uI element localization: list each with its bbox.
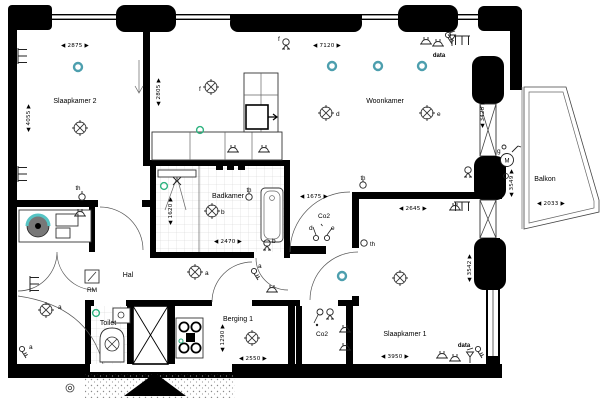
door-berging — [212, 262, 252, 302]
doorbell-icon — [66, 384, 74, 392]
co2-label: Co2 — [316, 331, 328, 338]
window-north-woonkamer-2 — [458, 15, 478, 18]
th-label: th — [360, 176, 365, 182]
room-label-berging1: Berging 1 — [223, 316, 253, 323]
switch-icon — [19, 346, 27, 358]
wall-south — [8, 364, 502, 378]
ceiling-light-icon — [419, 105, 435, 121]
rm-smoke-detector: RM — [85, 270, 99, 294]
entree-porch — [66, 364, 235, 398]
window-north-slaapkamer2 — [52, 15, 116, 18]
window-north-woonkamer-1 — [362, 15, 398, 18]
radiator-icon — [18, 48, 27, 64]
rm-label: RM — [87, 287, 97, 294]
window-north-keuken — [176, 15, 230, 18]
door-slaapkamer2 — [100, 207, 143, 250]
wall-light-icon — [464, 167, 472, 177]
room-label-toilet: Toilet — [100, 320, 116, 327]
radiator-icon — [454, 36, 470, 45]
balkon-outline — [522, 87, 599, 229]
dimension: ◀ 3950 ▶ — [381, 354, 409, 360]
wasmachine-aansluiting — [176, 318, 203, 358]
dimension: ◀ 1290 ▶ — [220, 324, 226, 352]
dimension: ◀ 1675 ▶ — [300, 194, 328, 200]
switch-tag: e — [437, 111, 441, 118]
radiator-icon — [18, 166, 27, 182]
co2-sensor-bottom: Co2 — [314, 309, 328, 338]
switch-icon — [475, 346, 483, 358]
door-slaapkamer1 — [310, 252, 358, 300]
data-label-bottom: data — [458, 343, 471, 349]
dimension: ◀ 2875 ▶ — [61, 43, 89, 49]
dimension: ◀ 3542 ▶ — [467, 254, 473, 282]
data-outlet-icon — [467, 348, 474, 363]
socket-icon — [449, 354, 461, 361]
room-label-woonkamer: Woonkamer — [366, 98, 404, 105]
co2-sensor-top: Co2 d e — [309, 213, 335, 241]
switch-tag: e — [331, 225, 335, 232]
teal-spot-icon — [328, 62, 336, 70]
dimension: ◀ 1620 ▶ — [168, 197, 174, 225]
motor-label: M — [505, 159, 510, 165]
switch-tag: a — [29, 344, 33, 351]
schuifdeur-arrow — [135, 60, 143, 93]
wall-light-icon — [326, 309, 334, 319]
room-label-slaapkamer2: Slaapkamer 2 — [53, 98, 96, 105]
ceiling-fan-icon — [203, 79, 219, 95]
switch-icon — [445, 32, 453, 44]
ceiling-light-icon — [392, 270, 408, 286]
floorplan-page: th th th th Co2 d e Co2 RM M a a — [0, 0, 600, 400]
mv-unit — [19, 210, 91, 242]
socket-icon — [436, 351, 448, 358]
ceiling-light-icon — [244, 330, 260, 346]
thermostat: th — [361, 240, 375, 248]
dimension: ◀ 2805 ▶ — [156, 78, 162, 106]
dimension: ◀ 2550 ▶ — [239, 356, 267, 362]
switch-tag: g — [497, 148, 501, 155]
door-woonkamer — [290, 192, 350, 252]
wall-east-upper — [510, 10, 522, 90]
switch-tag: a — [205, 270, 209, 277]
dimension: ◀ 2033 ▶ — [537, 201, 565, 207]
ceiling-light-icon — [38, 302, 54, 318]
switch-tag: b — [272, 238, 276, 245]
dimension: ◀ 4055 ▶ — [26, 104, 32, 132]
radiator-icon — [30, 276, 39, 292]
switch-tag: a — [58, 304, 62, 311]
teal-spot-icon — [338, 272, 346, 280]
switch-tag: f — [278, 36, 280, 43]
dimension: ◀ 3428 ▶ — [480, 100, 486, 128]
switch-tag: b — [221, 209, 225, 216]
teal-spot-icon — [74, 63, 82, 71]
floorplan-canvas: th th th th Co2 d e Co2 RM M a a — [0, 0, 600, 400]
shaft — [133, 306, 168, 364]
data-label-top: data — [433, 53, 446, 59]
th-label: th — [75, 186, 80, 192]
thermostat: th — [360, 176, 366, 188]
socket-icon — [432, 39, 444, 46]
switch-tag: d — [309, 225, 313, 232]
room-label-slaapkamer1: Slaapkamer 1 — [383, 331, 426, 338]
teal-spot-icon — [418, 62, 426, 70]
th-label: th — [370, 242, 375, 248]
co2-label: Co2 — [318, 213, 330, 220]
bathtub — [261, 188, 283, 242]
dimension: ◀ 7120 ▶ — [313, 43, 341, 49]
wall-west — [8, 14, 17, 374]
dimension: ◀ 2645 ▶ — [399, 206, 427, 212]
wc-icon — [100, 328, 124, 362]
teal-spot-icon — [374, 62, 382, 70]
facade-east — [472, 56, 506, 368]
ceiling-light-icon — [187, 264, 203, 280]
switch-tag: f — [199, 86, 201, 93]
dimension: ◀ 3549 ▶ — [509, 169, 515, 197]
switch-tag: a — [258, 263, 262, 270]
room-label-balkon: Balkon — [534, 176, 556, 183]
dimension: ◀ 2470 ▶ — [214, 239, 242, 245]
socket-icon — [420, 37, 432, 44]
wall-light-icon — [282, 39, 290, 49]
thermostat: th — [75, 186, 85, 200]
ceiling-light-icon — [318, 105, 334, 121]
th-label: th — [246, 188, 251, 194]
room-label-badkamer: Badkamer — [212, 193, 245, 200]
ceiling-light-icon — [72, 120, 88, 136]
room-label-hal: Hal — [123, 272, 134, 279]
switch-tag: d — [336, 111, 340, 118]
